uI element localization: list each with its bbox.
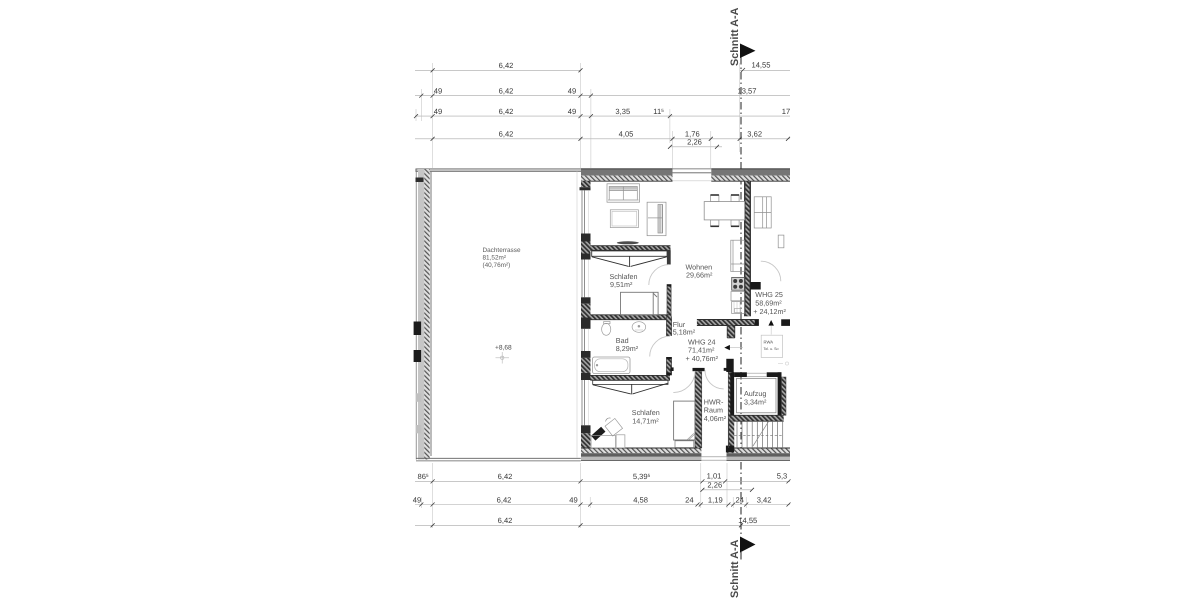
- svg-text:Schnitt A-A: Schnitt A-A: [729, 7, 741, 66]
- svg-text:6,42: 6,42: [499, 107, 514, 116]
- svg-text:14,55: 14,55: [751, 61, 770, 70]
- svg-text:3,35: 3,35: [615, 107, 630, 116]
- svg-text:8,29m²: 8,29m²: [616, 344, 639, 353]
- svg-text:2,26: 2,26: [707, 481, 722, 490]
- svg-text:4,05: 4,05: [619, 129, 634, 138]
- svg-text:+ 24,12m²: + 24,12m²: [753, 307, 786, 316]
- svg-text:+ 40,76m²: + 40,76m²: [686, 354, 719, 363]
- svg-text:49: 49: [569, 495, 577, 504]
- svg-text:+8,68: +8,68: [495, 345, 512, 352]
- svg-text:14,55: 14,55: [738, 516, 757, 525]
- svg-text:13,57: 13,57: [737, 86, 756, 95]
- svg-text:3,34m²: 3,34m²: [744, 398, 767, 407]
- svg-text:6,42: 6,42: [499, 61, 514, 70]
- svg-text:49: 49: [568, 86, 576, 95]
- svg-text:6,42: 6,42: [499, 86, 514, 95]
- svg-text:14,71m²: 14,71m²: [632, 417, 659, 426]
- svg-text:Dachterrasse: Dachterrasse: [483, 247, 521, 254]
- svg-text:1,19: 1,19: [708, 495, 723, 504]
- svg-text:49: 49: [434, 107, 442, 116]
- svg-text:49: 49: [413, 495, 421, 504]
- svg-text:81,52m²: 81,52m²: [483, 255, 506, 262]
- svg-text:6,42: 6,42: [499, 129, 514, 138]
- svg-text:2,26: 2,26: [687, 138, 702, 147]
- svg-text:29,66m²: 29,66m²: [686, 271, 713, 280]
- svg-text:4,58: 4,58: [633, 495, 648, 504]
- svg-text:(40,76m²): (40,76m²): [483, 262, 511, 269]
- svg-text:49: 49: [434, 86, 442, 95]
- svg-text:24: 24: [735, 495, 743, 504]
- svg-text:Schnitt A-A: Schnitt A-A: [729, 539, 741, 598]
- svg-text:1,01: 1,01: [707, 472, 722, 481]
- svg-text:6,42: 6,42: [497, 495, 512, 504]
- svg-text:49: 49: [568, 107, 576, 116]
- svg-text:RWA: RWA: [764, 340, 774, 345]
- svg-text:3,62: 3,62: [747, 129, 762, 138]
- svg-text:24: 24: [685, 495, 693, 504]
- svg-text:3,42: 3,42: [757, 495, 772, 504]
- svg-text:6,42: 6,42: [498, 516, 513, 525]
- svg-text:4,06m²: 4,06m²: [704, 414, 727, 423]
- svg-text:5,3: 5,3: [777, 472, 788, 481]
- svg-text:6,42: 6,42: [498, 472, 513, 481]
- svg-text:9,51m²: 9,51m²: [610, 280, 633, 289]
- svg-text:5,18m²: 5,18m²: [673, 328, 696, 337]
- svg-text:17: 17: [782, 107, 790, 116]
- svg-text:Tel. u. So: Tel. u. So: [764, 347, 779, 351]
